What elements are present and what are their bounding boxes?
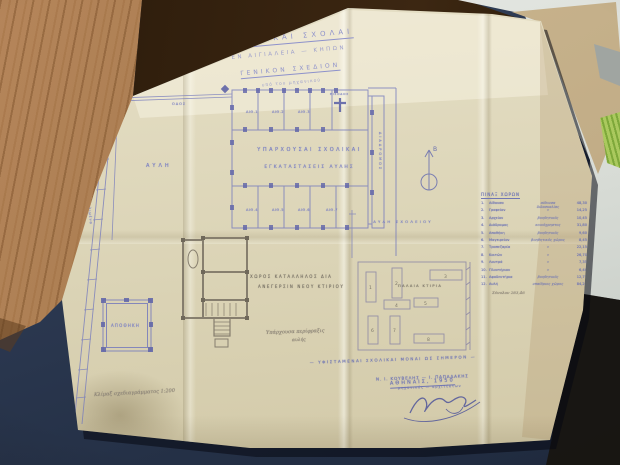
legend-table-header: ΠΙΝΑΞ ΧΩΡΩΝ [481,192,520,199]
storage-label: ΑΠΟΘΗΚΗ [111,324,140,328]
row-value: 84,25 [567,282,587,286]
table-row: 10. Πλυντήριον » 6,40 [481,268,587,275]
svg-text:5: 5 [424,301,427,307]
row-name: Κοιτών [489,253,529,257]
row-value: 14,25 [567,208,587,212]
row-description: υπαίθριος χώρος [529,282,567,286]
row-description: βοηθητικός [529,275,567,279]
row-description: » [529,208,567,212]
fence-note-line-1: Υπάρχουσα περίφραξις [266,329,325,336]
new-site-note-line-1: ΧΩΡΟΣ ΚΑΤΑΛΛΗΛΟΣ ΔΙΑ [250,275,333,279]
table-row: 7. Τραπεζαρία » 22,15 [481,245,587,252]
row-description: » [529,245,567,249]
svg-text:3: 3 [444,274,447,280]
site-sketch [358,262,470,350]
legend-table: ΠΙΝΑΞ ΧΩΡΩΝ 1. Αίθουσα αίθουσα διδασκαλί… [481,181,587,290]
row-name: Αίθουσα [489,201,529,205]
courtyard-label: ΑΥΛΗ [146,164,172,169]
room-label: ΑΙΘ.4 [246,208,258,212]
row-number: 12. [481,282,489,286]
row-number: 7. [481,245,489,249]
svg-text:8: 8 [427,337,430,343]
entrance-label: ΕΙΣΟΔΟΣ [330,93,349,96]
row-value: 8,45 [567,238,587,242]
row-value: 7,35 [567,260,587,264]
legend-table-total: Σύνολον 283,46 [492,291,525,295]
row-value: 6,40 [567,268,587,272]
new-site-note-line-2: ΑΝΕΓΕΡΣΙΝ ΝΕΟΥ ΚΤΙΡΙΟΥ [258,285,344,289]
row-number: 11. [481,275,489,279]
row-description: » [529,268,567,272]
row-description: βοηθητικός [529,231,567,235]
row-value: 12,75 [567,275,587,279]
photo-of-blueprint: Β [0,0,620,465]
table-row: 2. Γραφείον » 14,25 [481,208,587,215]
row-value: 9,60 [567,231,587,235]
room-label: ΑΙΘ.3 [298,110,310,114]
hall-label-line-2: ΕΓΚΑΤΑΣΤΑΣΕΙΣ ΑΥΛΗΣ [257,166,362,171]
row-name: Αποθήκη [489,231,529,235]
table-row: 9. Λουτρά » 7,35 [481,260,587,267]
room-label: ΑΙΘ.1 [246,110,258,114]
row-number: 10. [481,268,489,272]
room-label: ΑΙΘ.5 [272,208,284,212]
hall-label-line-1: ΥΠΑΡΧΟΥΣΑΙ ΣΧΟΛΙΚΑΙ [252,148,367,153]
svg-text:4: 4 [395,303,398,309]
row-name: Λουτρά [489,260,529,264]
room-label: ΑΙΘ.7 [326,208,338,212]
table-row: 4. Διάδρομος κοινόχρηστος 31,80 [481,223,587,230]
compass-north-label: Β [433,146,437,153]
row-name: Πλυντήριον [489,268,529,272]
corridor-label: ΔΙΑΔΡΟΜΟΣ [378,132,382,171]
row-name: Αυλή [489,282,529,286]
svg-text:7: 7 [393,328,396,334]
school-yard-label: ΑΥΛΗ ΣΧΟΛΕΙΟΥ [356,220,450,224]
row-value: 26,70 [567,253,587,257]
row-name: Διάδρομος [489,223,529,227]
row-name: Τραπεζαρία [489,245,529,249]
row-value: 10,45 [567,216,587,220]
row-description: » [529,260,567,264]
row-number: 9. [481,260,489,264]
row-description: βοηθητικός [529,216,567,220]
row-number: 8. [481,253,489,257]
room-label: ΑΙΘ.6 [298,208,310,212]
row-name: Μαγειρείον [489,238,529,242]
row-value: 22,15 [567,245,587,249]
row-number: 4. [481,223,489,227]
row-value: 31,80 [567,223,587,227]
row-name: Αφοδευτήρια [489,275,529,279]
row-name: Γραφείον [489,208,529,212]
street-label: ΟΔΟΣ [172,103,186,107]
svg-text:1: 1 [369,285,372,291]
row-value: 48,30 [567,201,587,205]
engineer-roles: μηχανικός — αρχιτέκτων [398,385,462,391]
table-row: 12. Αυλή υπαίθριος χώρος 84,25 [481,282,587,289]
row-number: 1. [481,201,489,205]
row-number: 6. [481,238,489,242]
row-number: 5. [481,231,489,235]
north-compass [421,150,437,190]
title-line-3: ΓΕΝΙΚΟΝ ΣΧΕΔΙΟΝ [240,62,341,80]
old-buildings-label: ΠΑΛΑΙΑ ΚΤΙΡΙΑ [398,285,442,289]
status-line: — ΥΦΙΣΤΑΜΕΝΑΙ ΣΧΟΛΙΚΑΙ ΜΟΝΑΙ ΩΣ ΣΗΜΕΡΟΝ … [294,355,492,366]
row-description: βοηθητικός χώρος [529,238,567,242]
row-name: Αρχείον [489,216,529,220]
row-number: 3. [481,216,489,220]
fence-note-line-2: αυλής [292,339,306,344]
row-description: κοινόχρηστος [529,223,567,227]
table-row: 5. Αποθήκη βοηθητικός 9,60 [481,231,587,238]
room-label: ΑΙΘ.2 [272,110,284,114]
svg-text:6: 6 [371,328,374,334]
row-description: » [529,253,567,257]
row-number: 2. [481,208,489,212]
